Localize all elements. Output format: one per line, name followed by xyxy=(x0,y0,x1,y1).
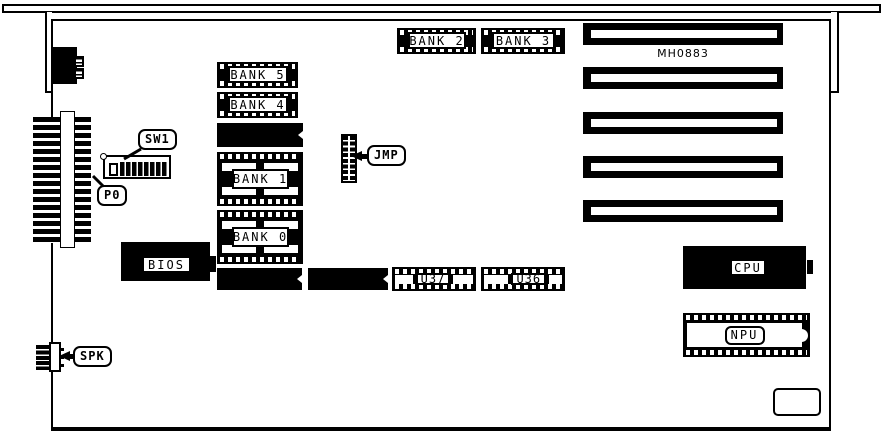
callout-p0: P0 xyxy=(97,185,127,206)
bank1-socket: BANK 1 xyxy=(217,152,303,206)
bank3-socket: BANK 3 xyxy=(481,28,565,54)
expansion-slot-3 xyxy=(583,112,783,134)
npu-socket: NPU xyxy=(683,313,810,357)
p0-connector-slot xyxy=(60,111,75,248)
logic-chip xyxy=(217,268,302,290)
bank3-label: BANK 3 xyxy=(492,32,555,49)
bank5-socket: BANK 5 xyxy=(217,62,298,88)
logic-chip xyxy=(308,268,388,290)
callout-jmp-label: JMP xyxy=(374,148,399,162)
keyboard-plug-icon xyxy=(74,56,84,67)
bracket-right xyxy=(831,12,839,93)
expansion-slot-1 xyxy=(583,23,783,45)
memory-chip xyxy=(217,123,303,147)
callout-spk-label: SPK xyxy=(80,349,105,363)
bank0-label: BANK 0 xyxy=(232,227,289,247)
motherboard-diagram: SW1 P0 BANK 5 BANK 4 BANK 2 BANK 3 BANK … xyxy=(0,0,887,436)
expansion-slot-4 xyxy=(583,156,783,178)
pin1-marker-icon xyxy=(100,153,107,160)
socket-notch-icon xyxy=(795,329,808,342)
bank2-label: BANK 2 xyxy=(408,32,466,49)
callout-p0-label: P0 xyxy=(104,188,120,202)
bank4-socket: BANK 4 xyxy=(217,92,298,118)
cpu-label: CPU xyxy=(730,259,766,276)
bios-chip-tab xyxy=(210,256,216,272)
dip-switch-positions xyxy=(120,162,168,176)
expansion-slot-2 xyxy=(583,67,783,89)
pin-row-icon xyxy=(686,315,807,320)
callout-sw1: SW1 xyxy=(138,129,177,150)
keyboard-plug-icon xyxy=(74,68,84,79)
pin-row-icon xyxy=(220,257,300,262)
bank0-socket: BANK 0 xyxy=(217,210,303,264)
u37-label: U37 xyxy=(416,273,451,285)
u36-socket: U36 xyxy=(481,267,565,291)
pin-row-icon xyxy=(686,350,807,355)
board-id-text: MH0883 xyxy=(583,47,783,60)
bios-label: BIOS xyxy=(142,256,191,273)
u36-label: U36 xyxy=(511,273,546,285)
bank2-socket: BANK 2 xyxy=(397,28,476,54)
bios-chip: BIOS xyxy=(121,242,210,281)
pin-row-icon xyxy=(220,154,300,159)
oscillator-component xyxy=(773,388,821,416)
dip-switch-position-off xyxy=(109,163,118,176)
bank1-label: BANK 1 xyxy=(232,169,289,189)
pin-row-icon xyxy=(220,212,300,217)
u37-socket: U37 xyxy=(392,267,476,291)
npu-label: NPU xyxy=(725,326,765,345)
callout-sw1-label: SW1 xyxy=(145,132,170,146)
callout-spk: SPK xyxy=(73,346,112,367)
callout-jmp: JMP xyxy=(367,145,406,166)
case-top-rail xyxy=(2,4,881,13)
npu-socket-well: NPU xyxy=(687,323,802,347)
cpu-chip-tab xyxy=(807,260,813,274)
callout-sw1-pointer-icon xyxy=(120,146,142,162)
bank5-label: BANK 5 xyxy=(228,66,288,83)
bank4-label: BANK 4 xyxy=(228,96,288,113)
pin-row-icon xyxy=(220,199,300,204)
cpu-chip: CPU xyxy=(683,246,806,289)
expansion-slot-5 xyxy=(583,200,783,222)
